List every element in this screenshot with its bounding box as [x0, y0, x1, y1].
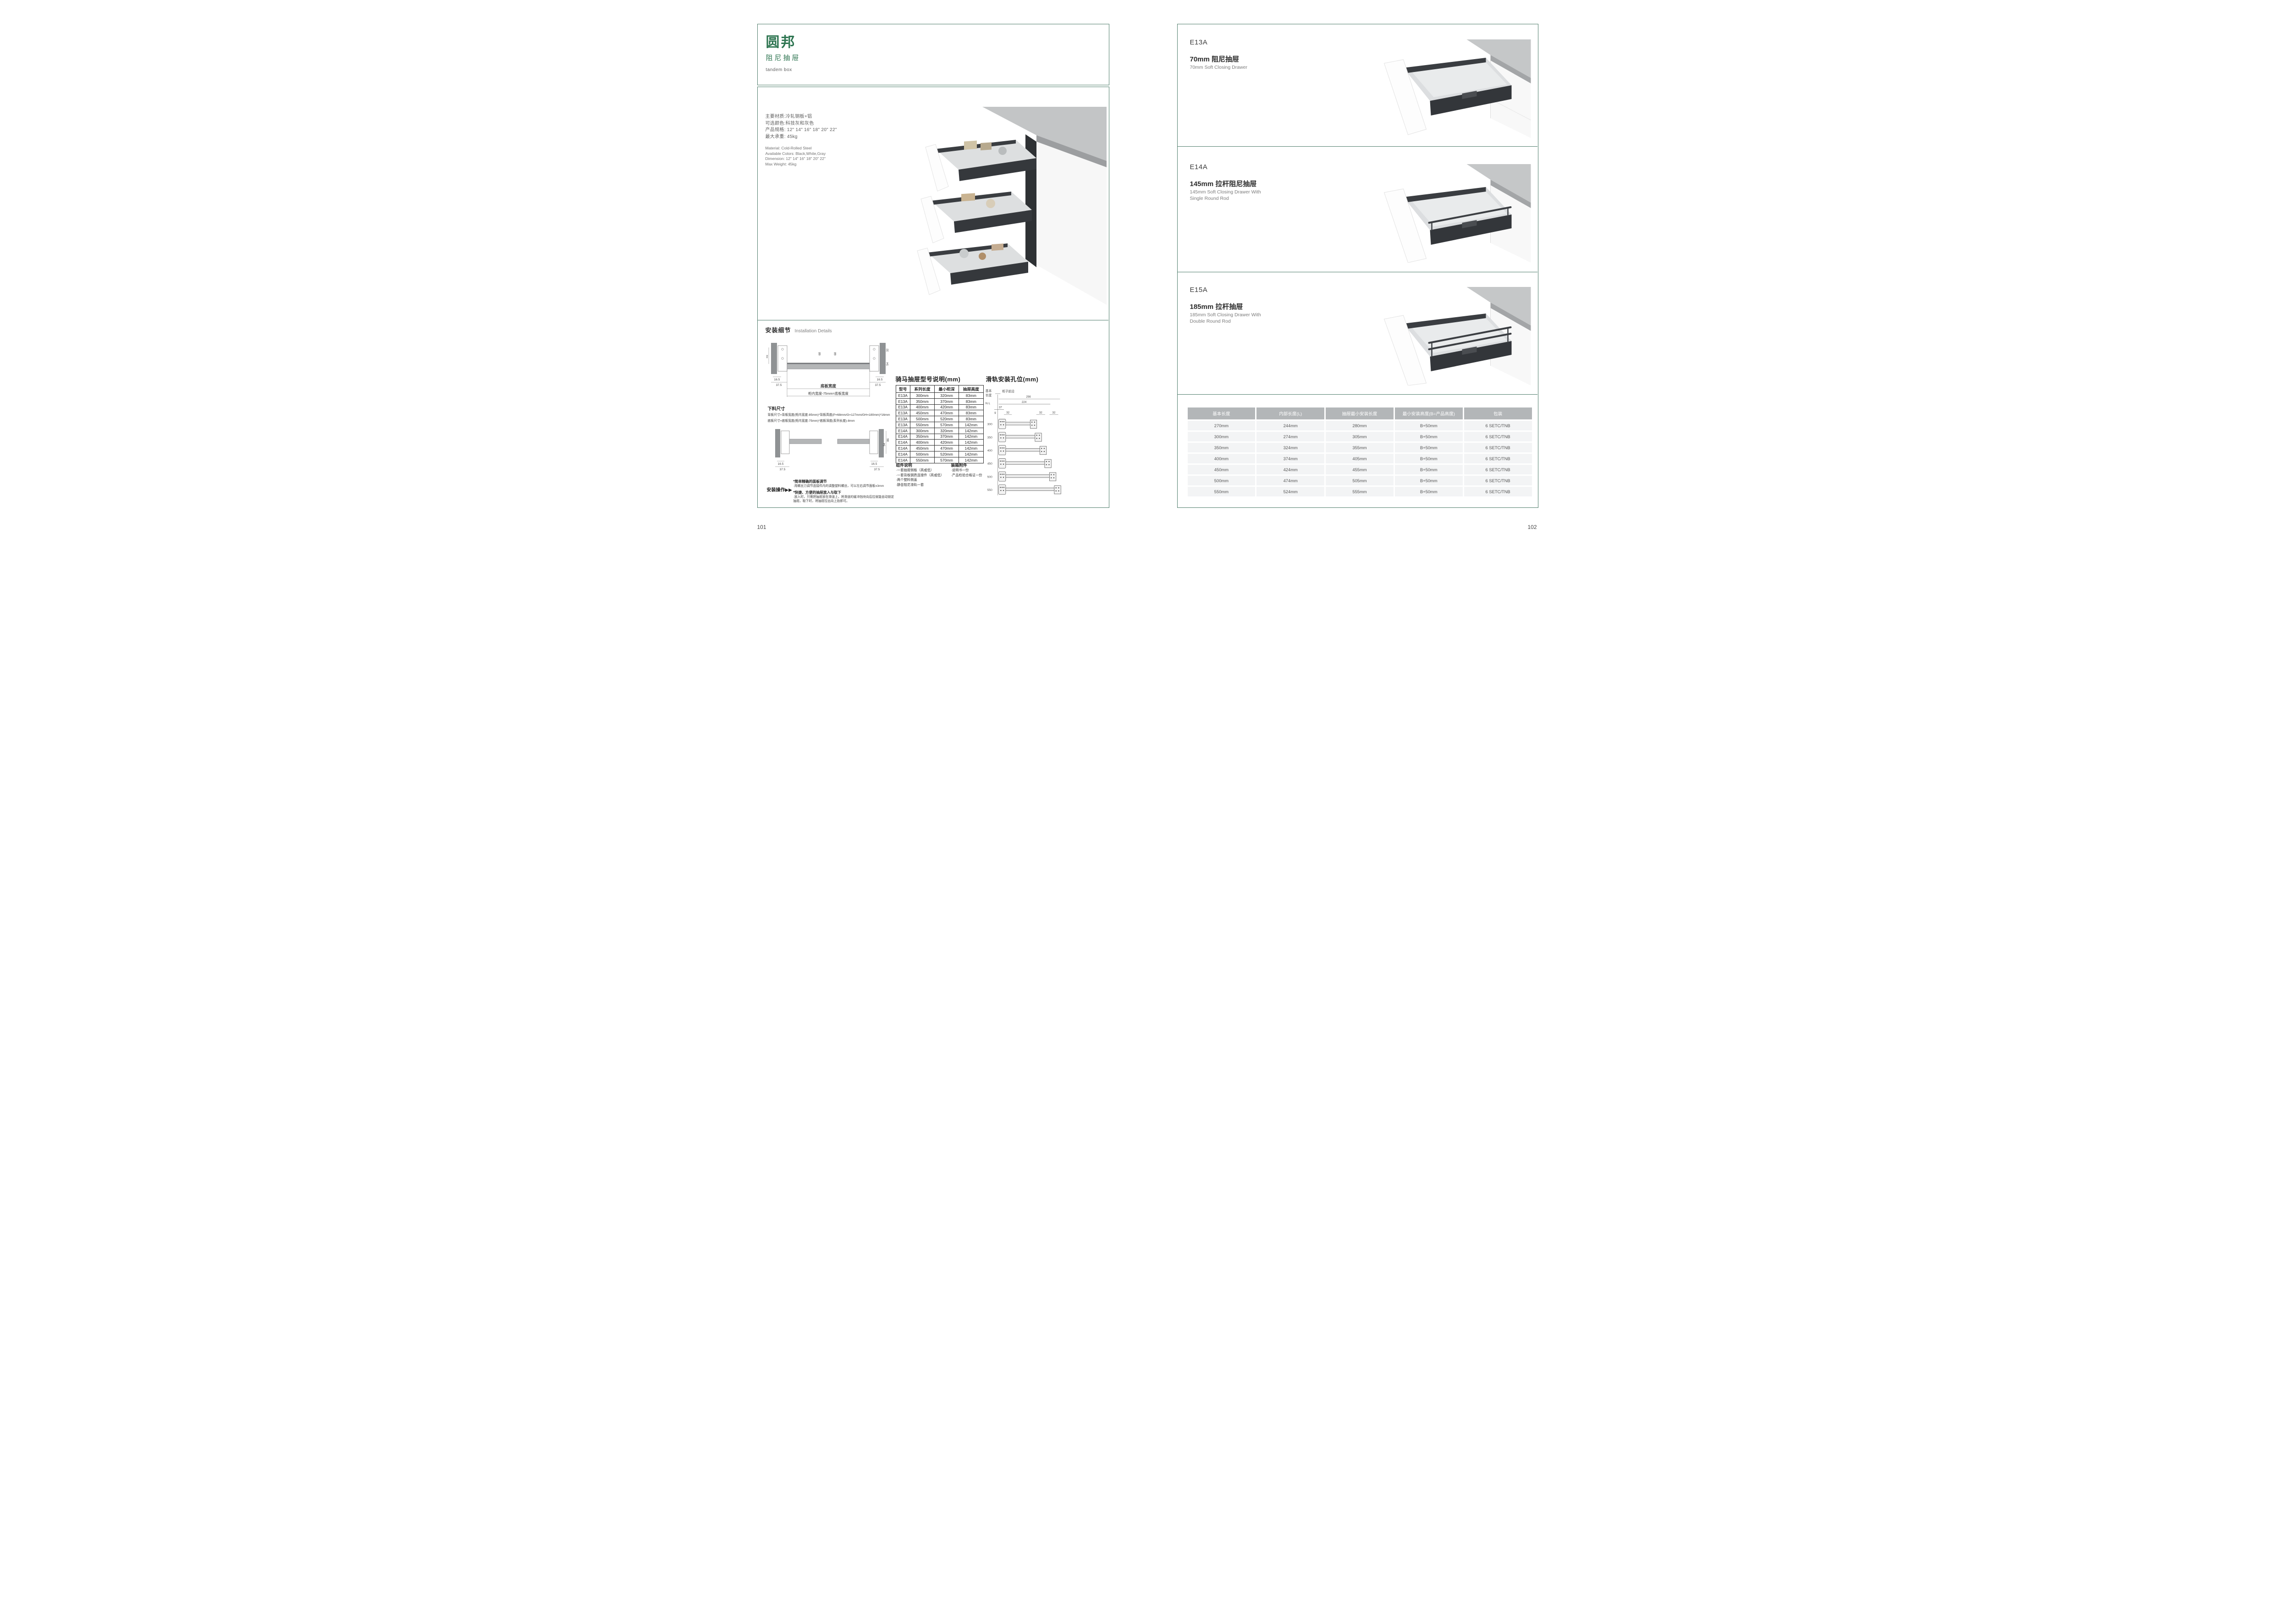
spec-line-cn: 可选颜色:科技灰和灰色	[766, 121, 837, 127]
table-cell: 505mm	[1326, 476, 1394, 485]
table-cell: 83mm	[959, 410, 983, 416]
page-number-left: 101	[757, 524, 766, 530]
svg-text:550: 550	[987, 489, 992, 492]
catalog-spread: 圆邦 阻尼抽屉 tandem box 主要材质:冷轧钢板+铝可选颜色:科技灰和灰…	[731, 0, 1561, 541]
table-cell: 420mm	[935, 404, 959, 410]
svg-text:37.5: 37.5	[779, 468, 785, 471]
svg-text:350: 350	[987, 436, 992, 439]
brand-name: 圆邦	[766, 31, 796, 51]
table-cell: B+50mm	[1395, 454, 1463, 463]
size-table-block: 基本长度内部长度(L)抽屉最小安装长度最小安装高度(B=产品高度)包装 270m…	[1186, 406, 1533, 498]
svg-text:32: 32	[1006, 411, 1009, 414]
table-cell: E13A	[896, 410, 910, 416]
product-photo-e15a	[1369, 287, 1532, 385]
column-header: 最小安装高度(B=产品高度)	[1395, 407, 1463, 419]
cutting-sizes: 下料尺寸 背板尺寸=背板宽度(柜内宽度-85mm)*背板高度(P=68mm/G=…	[768, 405, 893, 423]
table-cell: E13A	[896, 393, 910, 399]
table-cell: 300mm	[910, 428, 934, 434]
table-cell: 570mm	[935, 422, 959, 428]
spec-line-en: Dimension: 12" 14" 16" 18" 20" 22"	[766, 156, 826, 162]
table-cell: 400mm	[910, 440, 934, 446]
product-code: E14A	[1190, 163, 1208, 171]
product-name-cn: 145mm 拉杆阻尼抽屉	[1190, 179, 1257, 188]
table-cell: 500mm	[910, 416, 934, 422]
svg-text:37: 37	[998, 406, 1002, 409]
open-drawer-3	[917, 243, 1028, 295]
table-row: 500mm474mm505mmB+50mm6 SETC/TNB	[1188, 476, 1532, 485]
table-cell: 520mm	[935, 416, 959, 422]
table-cell: 142mm	[959, 428, 983, 434]
spec-line-cn: 主要材质:冷轧钢板+铝	[766, 114, 837, 121]
table-row: E13A550mm570mm142mm	[896, 422, 983, 428]
table-cell: 400mm	[910, 404, 934, 410]
svg-text:68: 68	[834, 352, 837, 356]
spec-line-en: Material: Cold-Rolled Steel	[766, 146, 826, 151]
table-cell: 305mm	[1326, 432, 1394, 441]
table-cell: B+50mm	[1395, 487, 1463, 496]
table-cell: 450mm	[910, 446, 934, 451]
table-cell: B+50mm	[1395, 432, 1463, 441]
table-cell: 474mm	[1256, 476, 1324, 485]
table-row: E14A350mm370mm142mm	[896, 434, 983, 440]
component-notes-title: 组件说明	[896, 462, 948, 468]
table-row: 550mm524mm555mmB+50mm6 SETC/TNB	[1188, 487, 1532, 496]
rail-diagram-title: 滑轨安装孔位(mm)	[986, 374, 1039, 383]
table-cell: 274mm	[1256, 432, 1324, 441]
table-row: E13A400mm420mm83mm	[896, 404, 983, 410]
operation-head: *简单精确的面板调节	[793, 479, 894, 484]
table-cell: 350mm	[910, 434, 934, 440]
cutting-lines: 背板尺寸=背板宽度(柜内宽度-85mm)*背板高度(P=68mm/G=127mm…	[768, 413, 893, 423]
svg-text:224: 224	[1021, 401, 1026, 404]
table-cell: E13A	[896, 416, 910, 422]
table-cell: 244mm	[1256, 421, 1324, 430]
install-title-en: Installation Details	[795, 329, 832, 334]
table-cell: 424mm	[1256, 465, 1324, 474]
svg-text:37.5: 37.5	[776, 384, 782, 387]
svg-text:柜子前沿: 柜子前沿	[1002, 389, 1014, 393]
product-name-en: 70mm Soft Closing Drawer	[1190, 64, 1272, 71]
table-cell: 500mm	[910, 451, 934, 457]
table-row: E13A300mm320mm83mm	[896, 393, 983, 399]
table-cell: 6 SETC/TNB	[1464, 432, 1532, 441]
svg-text:37.5: 37.5	[874, 468, 880, 471]
svg-text:N L: N L	[985, 402, 990, 405]
column-header: 内部长度(L)	[1256, 407, 1324, 419]
table-cell: 142mm	[959, 434, 983, 440]
spec-line-cn: 最大承重: 45kg	[766, 134, 837, 141]
cutting-formula: 底板尺寸=底板宽度(柜内宽度-75mm)*底板深度(系列长度)-8mm	[768, 419, 893, 424]
product-code: E15A	[1190, 286, 1208, 294]
size-table: 基本长度内部长度(L)抽屉最小安装长度最小安装高度(B=产品高度)包装 270m…	[1186, 406, 1533, 498]
note-item: ·静音阻尼滑轨一套	[896, 483, 948, 488]
product-name-cn: 70mm 阻尼抽屉	[1190, 54, 1240, 64]
table-cell: 6 SETC/TNB	[1464, 465, 1532, 474]
svg-text:基本: 基本	[985, 389, 992, 393]
svg-text:500: 500	[987, 475, 992, 479]
specs-cn: 主要材质:冷轧钢板+铝可选颜色:科技灰和灰色产品规格: 12" 14" 16" …	[766, 114, 837, 140]
spec-line-en: Available Colors: Black,White,Gray	[766, 151, 826, 157]
product-name-en: 145mm Soft Closing Drawer With Single Ro…	[1190, 189, 1272, 202]
page-number-right: 102	[1528, 524, 1537, 530]
product-photo-e13a	[1369, 39, 1532, 138]
table-cell: 142mm	[959, 451, 983, 457]
table-cell: E13A	[896, 404, 910, 410]
svg-text:54: 54	[886, 362, 889, 366]
table-cell: 83mm	[959, 404, 983, 410]
svg-text:68: 68	[818, 352, 821, 356]
svg-text:9: 9	[994, 412, 996, 415]
table-row: E13A450mm470mm83mm	[896, 410, 983, 416]
model-table-header-row: 型号系列长度最小柜深抽屉高度	[896, 385, 983, 393]
svg-text:450: 450	[987, 462, 992, 466]
svg-text:16.5: 16.5	[876, 378, 882, 381]
product-name-cn: 185mm 拉杆抽屉	[1190, 302, 1243, 311]
cutting-title: 下料尺寸	[768, 405, 893, 412]
table-cell: 400mm	[1188, 454, 1256, 463]
rail-rows	[998, 419, 1061, 494]
table-cell: 320mm	[935, 428, 959, 434]
svg-text:32: 32	[1039, 411, 1042, 414]
table-cell: 6 SETC/TNB	[1464, 421, 1532, 430]
product-photo-e14a	[1369, 164, 1532, 263]
table-cell: 324mm	[1256, 443, 1324, 452]
table-cell: 370mm	[935, 398, 959, 404]
table-cell: B+50mm	[1395, 476, 1463, 485]
table-cell: 550mm	[910, 422, 934, 428]
table-cell: 374mm	[1256, 454, 1324, 463]
table-cell: 470mm	[935, 446, 959, 451]
product-code: E13A	[1190, 39, 1208, 46]
table-row: E14A300mm320mm142mm	[896, 428, 983, 434]
svg-text:300: 300	[987, 423, 992, 426]
table-cell: 500mm	[1188, 476, 1256, 485]
operation-items: *简单精确的面板调节 ·用螺丝刀调节连接件内的调整塑料螺丝，可以左右调节面板±3…	[793, 478, 894, 503]
spec-line-en: Max Weight: 45kg	[766, 162, 826, 167]
table-cell: 6 SETC/TNB	[1464, 443, 1532, 452]
operation-body: ·放入时，只需把抽屉放在滑道上，将滑道的缓冲挡块向后拉就能自动锁定抽屉。取下时，…	[793, 495, 894, 504]
svg-text:54: 54	[883, 443, 886, 446]
svg-text:16.5: 16.5	[774, 378, 780, 381]
brand-subtitle: 阻尼抽屉	[766, 53, 801, 62]
table-cell: 420mm	[935, 440, 959, 446]
table-cell: B+50mm	[1395, 465, 1463, 474]
table-cell: 455mm	[1326, 465, 1394, 474]
table-cell: E14A	[896, 440, 910, 446]
table-cell: E14A	[896, 446, 910, 451]
svg-text:32: 32	[886, 348, 889, 352]
table-cell: E14A	[896, 451, 910, 457]
install-diagram-side: 16.5 37.5 16.5 37.5 54 86	[769, 426, 890, 474]
table-row: E13A500mm520mm83mm	[896, 416, 983, 422]
table-cell: 83mm	[959, 398, 983, 404]
operation-title: 安装操作▶▶	[767, 486, 792, 493]
table-cell: 83mm	[959, 416, 983, 422]
table-cell: 355mm	[1326, 443, 1394, 452]
table-cell: 142mm	[959, 446, 983, 451]
table-cell: E14A	[896, 434, 910, 440]
table-cell: 370mm	[935, 434, 959, 440]
install-header: 安装细节Installation Details	[766, 325, 832, 335]
open-drawer-2	[921, 192, 1032, 243]
svg-text:37.5: 37.5	[875, 384, 881, 387]
table-cell: 300mm	[1188, 432, 1256, 441]
table-cell: 320mm	[935, 393, 959, 399]
right-divider-1	[1177, 146, 1537, 147]
table-cell: B+50mm	[1395, 443, 1463, 452]
note-item: ·一套抽屉侧板（高或低）	[896, 468, 948, 473]
svg-text:256: 256	[1026, 395, 1031, 398]
component-notes: 组件说明 ·一套抽屉侧板（高或低）·一套背板钢质连接件（高或低）·两个塑料侧盖·…	[896, 462, 948, 487]
product-name-en: 185mm Soft Closing Drawer With Double Ro…	[1190, 312, 1272, 325]
table-cell: 524mm	[1256, 487, 1324, 496]
column-header: 最小柜深	[935, 385, 959, 393]
left-section-divider	[757, 320, 1108, 320]
table-row: E14A450mm470mm142mm	[896, 446, 983, 451]
table-row: 450mm424mm455mmB+50mm6 SETC/TNB	[1188, 465, 1532, 474]
open-drawer-1	[926, 140, 1036, 191]
column-header: 抽屉最小安装长度	[1326, 407, 1394, 419]
table-row: 300mm274mm305mmB+50mm6 SETC/TNB	[1188, 432, 1532, 441]
table-cell: B+50mm	[1395, 421, 1463, 430]
table-row: E14A400mm420mm142mm	[896, 440, 983, 446]
cutting-formula: 背板尺寸=背板宽度(柜内宽度-85mm)*背板高度(P=68mm/G=127mm…	[768, 413, 893, 418]
column-header: 包装	[1464, 407, 1532, 419]
column-header: 型号	[896, 385, 910, 393]
table-cell: 142mm	[959, 440, 983, 446]
table-cell: 520mm	[935, 451, 959, 457]
table-cell: 550mm	[1188, 487, 1256, 496]
table-cell: E14A	[896, 428, 910, 434]
svg-text:46: 46	[766, 355, 769, 358]
specs-en: Material: Cold-Rolled SteelAvailable Col…	[766, 146, 826, 167]
table-cell: 270mm	[1188, 421, 1256, 430]
model-table-block: 骑马抽屉型号说明(mm) 型号系列长度最小柜深抽屉高度 E13A300mm320…	[896, 374, 984, 463]
svg-text:长度: 长度	[985, 393, 992, 397]
model-table-title: 骑马抽屉型号说明(mm)	[896, 374, 984, 383]
svg-text:16.5: 16.5	[777, 462, 783, 466]
table-cell: 450mm	[910, 410, 934, 416]
note-item: ·一套背板钢质连接件（高或低）	[896, 473, 948, 478]
table-cell: 350mm	[910, 398, 934, 404]
svg-text:柜内宽度-75mm=底板宽度: 柜内宽度-75mm=底板宽度	[808, 391, 848, 396]
svg-text:86: 86	[887, 438, 890, 442]
table-cell: 405mm	[1326, 454, 1394, 463]
table-cell: E13A	[896, 398, 910, 404]
table-cell: 350mm	[1188, 443, 1256, 452]
model-table: 型号系列长度最小柜深抽屉高度 E13A300mm320mm83mmE13A350…	[896, 385, 984, 463]
table-row: 350mm324mm355mmB+50mm6 SETC/TNB	[1188, 443, 1532, 452]
table-cell: 83mm	[959, 393, 983, 399]
brand-tagline: tandem box	[766, 67, 792, 72]
table-cell: 300mm	[910, 393, 934, 399]
size-table-header-row: 基本长度内部长度(L)抽屉最小安装长度最小安装高度(B=产品高度)包装	[1188, 407, 1532, 419]
table-cell: 6 SETC/TNB	[1464, 476, 1532, 485]
table-cell: E13A	[896, 422, 910, 428]
rail-hole-diagram: 基本 长度 N L 柜子前沿 256 224 37 9 32 32 32 300…	[985, 384, 1063, 500]
operation-body: ·用螺丝刀调节连接件内的调整塑料螺丝，可以左右调节面板±3mm	[793, 484, 894, 489]
table-cell: 470mm	[935, 410, 959, 416]
svg-text:400: 400	[987, 449, 992, 452]
column-header: 系列长度	[910, 385, 934, 393]
table-cell: 450mm	[1188, 465, 1256, 474]
table-cell: 6 SETC/TNB	[1464, 454, 1532, 463]
right-divider-3	[1177, 394, 1537, 395]
right-divider-2	[1177, 272, 1537, 272]
table-row: E13A350mm370mm83mm	[896, 398, 983, 404]
table-cell: 142mm	[959, 422, 983, 428]
install-title-cn: 安装细节	[766, 327, 791, 334]
table-cell: 555mm	[1326, 487, 1394, 496]
install-diagram-width: 46 16.5 37.5 68 68 32 54 16.5 37.5 底板宽度 …	[766, 340, 890, 402]
spec-line-cn: 产品规格: 12" 14" 16" 18" 20" 22"	[766, 127, 837, 134]
table-row: E14A500mm520mm142mm	[896, 451, 983, 457]
svg-text:32: 32	[1052, 411, 1055, 414]
column-header: 基本长度	[1188, 407, 1256, 419]
svg-text:底板宽度: 底板宽度	[820, 384, 836, 388]
cabinet-photo	[914, 107, 1107, 305]
svg-text:16.5: 16.5	[871, 462, 877, 466]
table-row: 400mm374mm405mmB+50mm6 SETC/TNB	[1188, 454, 1532, 463]
table-row: 270mm244mm280mmB+50mm6 SETC/TNB	[1188, 421, 1532, 430]
note-item: ·两个塑料侧盖	[896, 478, 948, 483]
table-cell: 6 SETC/TNB	[1464, 487, 1532, 496]
logo-box: 圆邦 阻尼抽屉 tandem box	[757, 24, 1109, 85]
operation-head: *快捷、方便的抽屉放入与取下	[793, 490, 894, 495]
column-header: 抽屉高度	[959, 385, 983, 393]
table-cell: 280mm	[1326, 421, 1394, 430]
